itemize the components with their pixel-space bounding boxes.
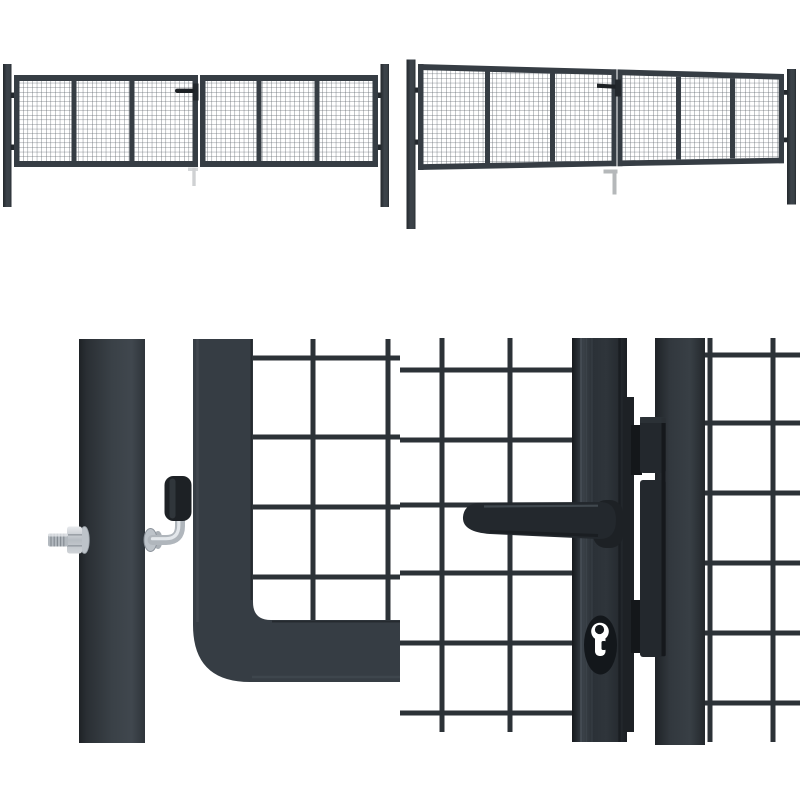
hex-nut — [67, 527, 82, 554]
left-fence-post — [407, 60, 419, 230]
threaded-bolt-end — [48, 534, 68, 547]
hinge-detail-image — [0, 330, 400, 800]
lever-handle — [463, 500, 623, 548]
right-fence-post — [378, 64, 390, 207]
drop-rod — [188, 168, 198, 187]
hinge-elbow-pin — [153, 518, 181, 540]
gate-leaf-right — [200, 75, 378, 167]
gate-leaf-left — [14, 75, 198, 167]
mesh-grid — [253, 339, 400, 620]
handle-lock-detail-image — [400, 330, 800, 800]
mesh-grid-right — [700, 338, 800, 742]
gate-front-view-image — [0, 0, 400, 250]
gate-leaf-right — [618, 69, 785, 166]
gate-perspective-view-image — [400, 0, 800, 250]
gate-frame-corner — [193, 339, 400, 682]
left-fence-post — [3, 64, 15, 207]
mesh-panel — [623, 75, 779, 160]
mesh-panel — [424, 70, 612, 164]
gate-leaf-left — [418, 64, 617, 170]
mesh-panel — [205, 81, 374, 162]
drop-rod — [604, 170, 618, 195]
right-fence-post — [784, 69, 796, 205]
hinge-sleeve — [165, 476, 192, 521]
mesh-panel — [19, 81, 193, 162]
latch-keeper-plate — [631, 417, 666, 657]
product-collage — [0, 0, 800, 800]
euro-cylinder-keyhole — [584, 616, 617, 675]
